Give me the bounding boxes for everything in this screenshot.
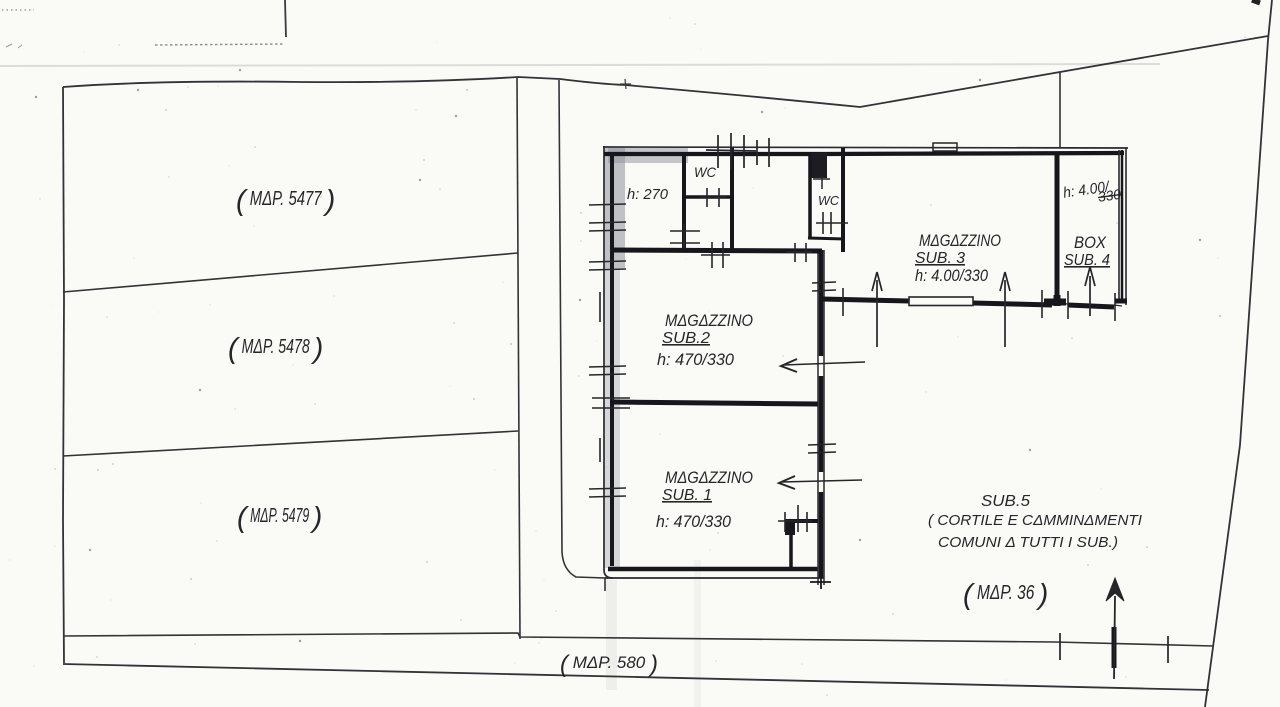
svg-text:( CORTILE E CΔMMINΔMENTI: ( CORTILE E CΔMMINΔMENTI <box>928 512 1142 529</box>
svg-text:MΔGΔZZINO: MΔGΔZZINO <box>665 311 753 330</box>
svg-text:SUB.2: SUB.2 <box>662 330 710 347</box>
svg-text:SUB. 4: SUB. 4 <box>1064 252 1110 269</box>
svg-text:h: 470/330: h: 470/330 <box>657 350 735 369</box>
svg-text:COMUNI Δ TUTTI I SUB.): COMUNI Δ TUTTI I SUB.) <box>938 534 1118 551</box>
svg-text:BOX: BOX <box>1074 233 1107 252</box>
svg-text:MΔGΔZZINO: MΔGΔZZINO <box>919 231 1001 250</box>
svg-text:SUB. 1: SUB. 1 <box>662 487 712 504</box>
svg-text:WC: WC <box>818 193 840 208</box>
svg-text:MΔGΔZZINO: MΔGΔZZINO <box>665 468 753 487</box>
svg-text:h: 470/330: h: 470/330 <box>656 512 732 531</box>
svg-text:h: 270: h: 270 <box>627 186 669 203</box>
svg-text:WC: WC <box>694 164 717 180</box>
svg-text:SUB. 3: SUB. 3 <box>915 250 965 267</box>
svg-text:h: 4.00/330: h: 4.00/330 <box>915 266 988 285</box>
svg-text:SUB.5: SUB.5 <box>981 493 1030 510</box>
svg-text:330: 330 <box>1097 186 1122 205</box>
